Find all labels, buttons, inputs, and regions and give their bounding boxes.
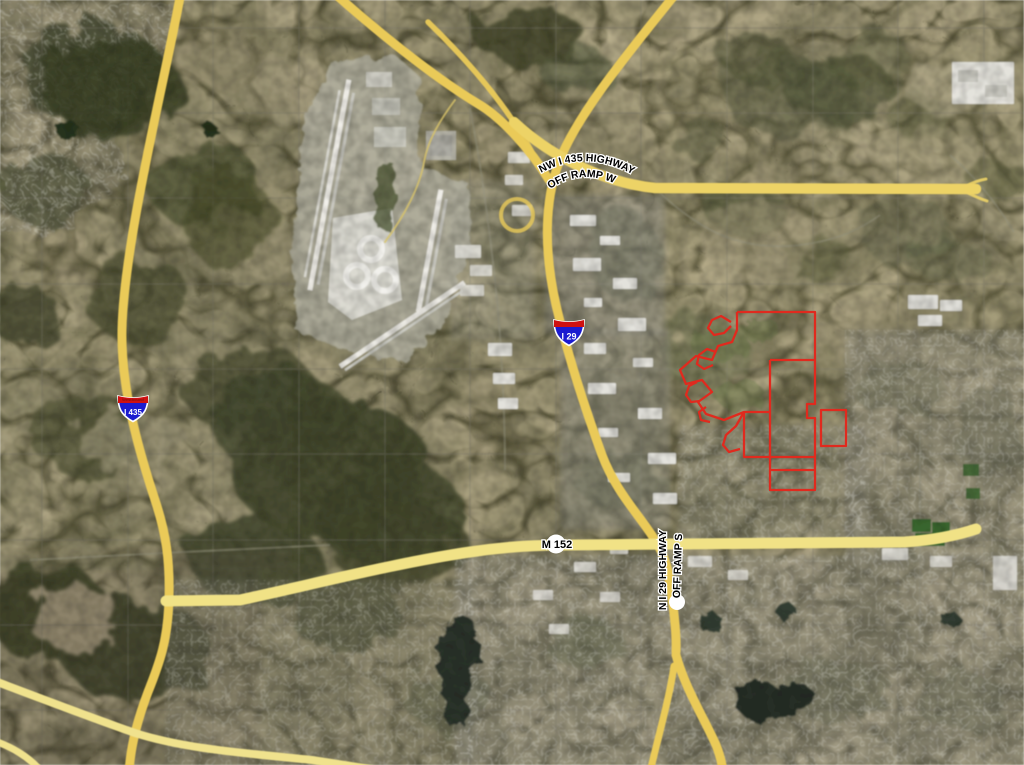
svg-text:M 152: M 152 xyxy=(542,539,573,551)
svg-text:I 29: I 29 xyxy=(561,332,576,342)
svg-text:Westbound: Westbound xyxy=(122,397,144,402)
svg-text:N I 29 HIGHWAY: N I 29 HIGHWAY xyxy=(657,530,669,610)
svg-text:I 435: I 435 xyxy=(124,408,142,417)
svg-text:OFF RAMP S: OFF RAMP S xyxy=(671,533,685,598)
